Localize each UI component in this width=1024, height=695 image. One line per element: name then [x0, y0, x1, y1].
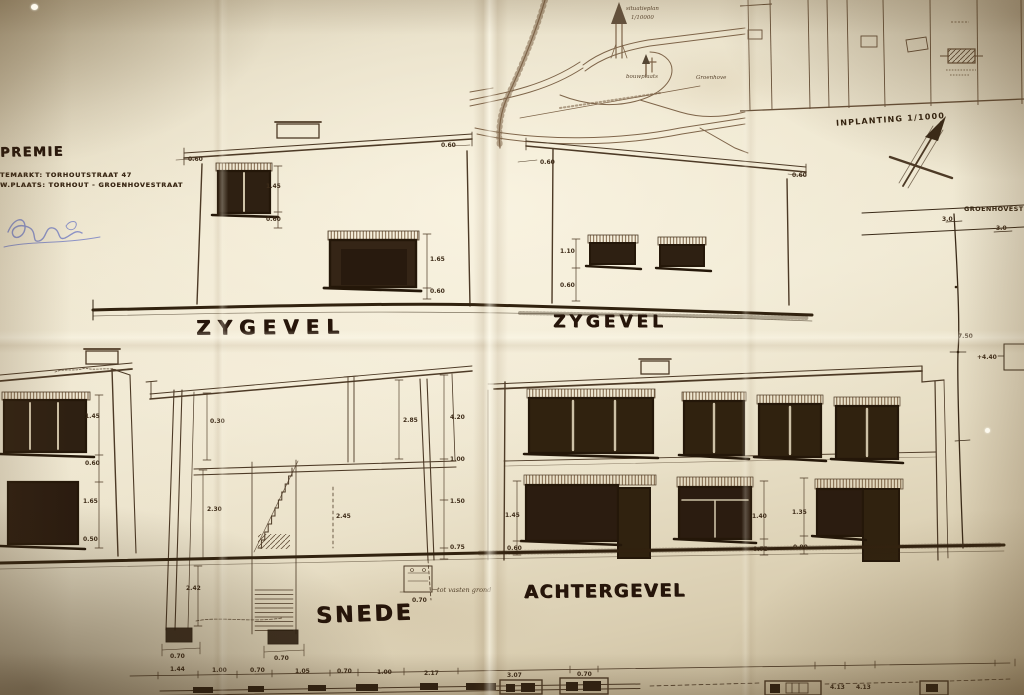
- window: [529, 398, 653, 453]
- door: [863, 489, 899, 561]
- zygevel-right-drawing: [518, 138, 806, 305]
- foundation-detail: [404, 566, 432, 592]
- chimney: [277, 124, 319, 138]
- foundation-block: [268, 630, 298, 644]
- dust-speck: [985, 428, 990, 433]
- bouwplaats-arrow-icon: [642, 54, 650, 64]
- blueprint-photo: PREMIE TEMARKT: TORHOUTSTRAAT 47 W.PLAAT…: [0, 0, 1024, 695]
- chimney: [641, 361, 669, 374]
- ground-line-upper: [93, 300, 812, 321]
- window: [8, 482, 78, 544]
- window: [660, 245, 704, 266]
- chimney: [86, 351, 118, 364]
- achtergevel-drawing: [488, 359, 948, 561]
- window: [4, 400, 86, 452]
- window: [526, 485, 618, 541]
- floor-plan-fragment: [130, 659, 1015, 695]
- ground-line-lower: [0, 545, 1004, 569]
- signature: [4, 220, 100, 247]
- site-map: [470, 0, 748, 153]
- inplanting-north-arrow-icon: [890, 116, 952, 188]
- zygevel-left-drawing: [176, 122, 472, 306]
- dust-speck: [31, 4, 38, 10]
- door: [618, 488, 650, 558]
- voorgevel-partial-drawing: [0, 349, 136, 556]
- snede-drawing: [146, 366, 472, 658]
- window: [817, 489, 863, 536]
- window: [590, 243, 635, 264]
- drawing-linework: [0, 0, 1024, 695]
- building-plot-hatched: [948, 49, 975, 63]
- foundation-block: [166, 628, 192, 642]
- map-north-arrow-icon: [611, 2, 627, 24]
- church-cross-icon: [648, 58, 656, 72]
- site-plan: [740, 0, 1024, 111]
